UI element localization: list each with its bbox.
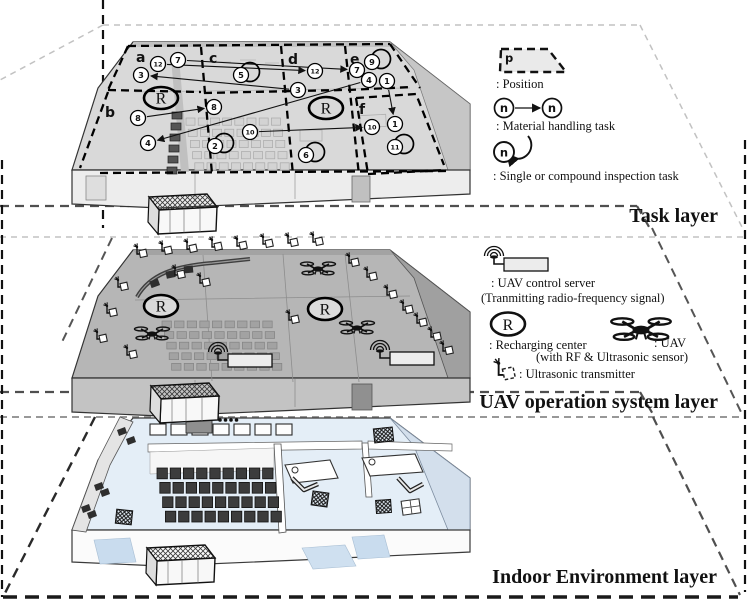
- ultrasonic-label: : Ultrasonic transmitter: [519, 367, 636, 381]
- conveyor-box: [168, 156, 178, 163]
- rack: [239, 482, 249, 493]
- rack: [190, 332, 199, 339]
- rack: [197, 363, 206, 370]
- rack: [215, 497, 225, 508]
- rack: [231, 511, 241, 522]
- rack: [157, 468, 167, 479]
- ultrasonic-icon: [494, 358, 516, 380]
- rack: [192, 342, 201, 349]
- rack: [176, 497, 186, 508]
- rack: [205, 511, 215, 522]
- recharging-center-letter: R: [320, 302, 331, 319]
- rack: [187, 321, 196, 328]
- material-node-a-letter: n: [500, 101, 508, 115]
- rack: [227, 140, 236, 147]
- server-label: : UAV control server: [491, 276, 596, 290]
- rack: [170, 468, 180, 479]
- rack: [263, 468, 273, 479]
- rack: [197, 468, 207, 479]
- rack: [200, 321, 209, 328]
- rack: [249, 468, 259, 479]
- rack: [238, 321, 247, 328]
- task-node-number: 8: [135, 113, 141, 123]
- machine: [276, 424, 292, 435]
- rack: [172, 363, 181, 370]
- server-icon: [485, 247, 549, 272]
- inspection-label: : Single or compound inspection task: [493, 169, 679, 183]
- rack: [210, 468, 220, 479]
- rack: [164, 332, 173, 339]
- rack: [202, 497, 212, 508]
- rack: [254, 152, 263, 159]
- architecture-diagram: RR: [0, 0, 747, 603]
- task-node-number: 6: [303, 150, 309, 160]
- rack: [198, 118, 207, 125]
- rack: [182, 353, 191, 360]
- loading-container: [146, 545, 215, 585]
- rack: [195, 163, 204, 170]
- rack: [253, 332, 262, 339]
- rack: [261, 129, 270, 136]
- rack: [194, 353, 203, 360]
- uav-sublabel: (with RF & Ultrasonic sensor): [536, 350, 688, 364]
- task-node-number: 9: [369, 57, 375, 67]
- rack: [256, 163, 265, 170]
- rack: [268, 342, 277, 349]
- material-label: : Material handling task: [496, 119, 616, 133]
- machine-dial: [224, 418, 228, 422]
- rack: [173, 482, 183, 493]
- rack: [229, 152, 238, 159]
- rack: [165, 511, 175, 522]
- zone-label-a: a: [136, 50, 145, 66]
- ultrasonic-transmitter-icon: [285, 232, 299, 246]
- rack: [242, 497, 252, 508]
- rack: [276, 140, 285, 147]
- rack: [271, 511, 281, 522]
- rack: [179, 342, 188, 349]
- uav-label: : UAV: [654, 336, 686, 350]
- rack: [268, 163, 277, 170]
- rack: [190, 140, 199, 147]
- rack: [241, 152, 250, 159]
- task-legend: p : Position n n : Material handling tas…: [493, 49, 679, 183]
- ultrasonic-transmitter-icon: [260, 233, 274, 247]
- rack: [179, 511, 189, 522]
- recharge-icon-letter: R: [503, 317, 514, 334]
- zone-label-d: d: [288, 52, 298, 68]
- rack: [231, 163, 240, 170]
- rack: [183, 468, 193, 479]
- rack: [227, 332, 236, 339]
- rack: [230, 342, 239, 349]
- machine: [255, 424, 271, 435]
- rack: [186, 118, 195, 125]
- rack: [186, 482, 196, 493]
- uav-legend: : UAV control server (Tranmitting radio-…: [481, 247, 688, 382]
- task-node-number: 12: [310, 67, 319, 75]
- machine-dial: [235, 418, 239, 422]
- zone-label-f: f: [359, 102, 366, 118]
- rack: [236, 468, 246, 479]
- zone-label-b: b: [105, 105, 115, 121]
- task-node-number: 12: [153, 60, 162, 68]
- rack: [225, 321, 234, 328]
- task-node-number: 10: [367, 123, 377, 131]
- rack: [212, 321, 221, 328]
- task-node-number: 5: [238, 70, 244, 80]
- rack: [169, 353, 178, 360]
- rack: [163, 497, 173, 508]
- server-sublabel: (Tranmitting radio-frequency signal): [481, 291, 665, 305]
- rack: [265, 332, 274, 339]
- task-node-number: 4: [145, 138, 151, 148]
- rack: [250, 321, 259, 328]
- task-node-number: 7: [175, 55, 181, 65]
- recharging-center-letter: R: [156, 299, 167, 316]
- rack: [235, 118, 244, 125]
- machine: [213, 424, 229, 435]
- rack: [192, 511, 202, 522]
- machine: [150, 424, 166, 435]
- conveyor-box: [171, 123, 181, 130]
- rack: [252, 482, 262, 493]
- conveyor-box: [169, 145, 179, 152]
- machine: [234, 424, 250, 435]
- rack: [226, 482, 236, 493]
- position-symbol-letter: p: [505, 51, 513, 65]
- rack: [278, 152, 287, 159]
- rack: [167, 342, 176, 349]
- task-node-number: 10: [245, 128, 255, 136]
- rack: [160, 482, 170, 493]
- task-node-number: 11: [390, 143, 400, 151]
- rack: [209, 363, 218, 370]
- rack: [229, 497, 239, 508]
- rack: [240, 332, 249, 339]
- loading-container: [148, 194, 217, 234]
- rack: [242, 342, 251, 349]
- loading-container: [150, 383, 219, 423]
- rack: [213, 482, 223, 493]
- rack: [251, 140, 260, 147]
- recharging-center-letter: R: [321, 101, 332, 118]
- indoor-layer-label: Indoor Environment layer: [492, 566, 717, 588]
- material-node-b-letter: n: [548, 101, 556, 115]
- rack: [265, 482, 275, 493]
- rack: [219, 163, 228, 170]
- rack: [264, 140, 273, 147]
- zone-label-c: c: [209, 51, 217, 67]
- rack: [218, 511, 228, 522]
- rack: [280, 163, 289, 170]
- rack: [223, 468, 233, 479]
- rack: [255, 497, 265, 508]
- rack: [189, 497, 199, 508]
- rack: [266, 152, 275, 159]
- rack: [175, 321, 184, 328]
- recharging-center-letter: R: [156, 91, 167, 108]
- machine: [171, 424, 187, 435]
- task-node-number: 3: [138, 70, 144, 80]
- rack: [255, 342, 264, 349]
- task-node-number: 8: [211, 102, 217, 112]
- machine-dial: [229, 418, 233, 422]
- indoor-building: [72, 417, 470, 585]
- rack: [259, 118, 268, 125]
- position-label: : Position: [496, 77, 544, 91]
- rack: [268, 497, 278, 508]
- rack: [239, 140, 248, 147]
- ultrasonic-transmitter-icon: [310, 231, 324, 245]
- rack: [244, 163, 253, 170]
- rack: [202, 332, 211, 339]
- inspection-node-letter: n: [500, 146, 508, 160]
- uav-building: [72, 250, 470, 423]
- rack: [215, 332, 224, 339]
- rack: [199, 482, 209, 493]
- rack: [272, 363, 281, 370]
- rack: [193, 152, 202, 159]
- rack: [177, 332, 186, 339]
- task-layer-label: Task layer: [629, 205, 718, 227]
- rack: [245, 511, 255, 522]
- uav-layer-label: UAV operation system layer: [479, 391, 718, 413]
- ultrasonic-transmitter-icon: [209, 236, 223, 250]
- rack: [184, 363, 193, 370]
- task-node-number: 1: [392, 119, 398, 129]
- rack: [258, 511, 268, 522]
- task-node-number: 3: [295, 85, 301, 95]
- task-node-number: 7: [354, 65, 360, 75]
- rack: [271, 118, 280, 125]
- task-node-number: 1: [384, 76, 390, 86]
- task-node-number: 4: [366, 75, 372, 85]
- task-node-number: 2: [212, 141, 218, 151]
- rack: [263, 321, 272, 328]
